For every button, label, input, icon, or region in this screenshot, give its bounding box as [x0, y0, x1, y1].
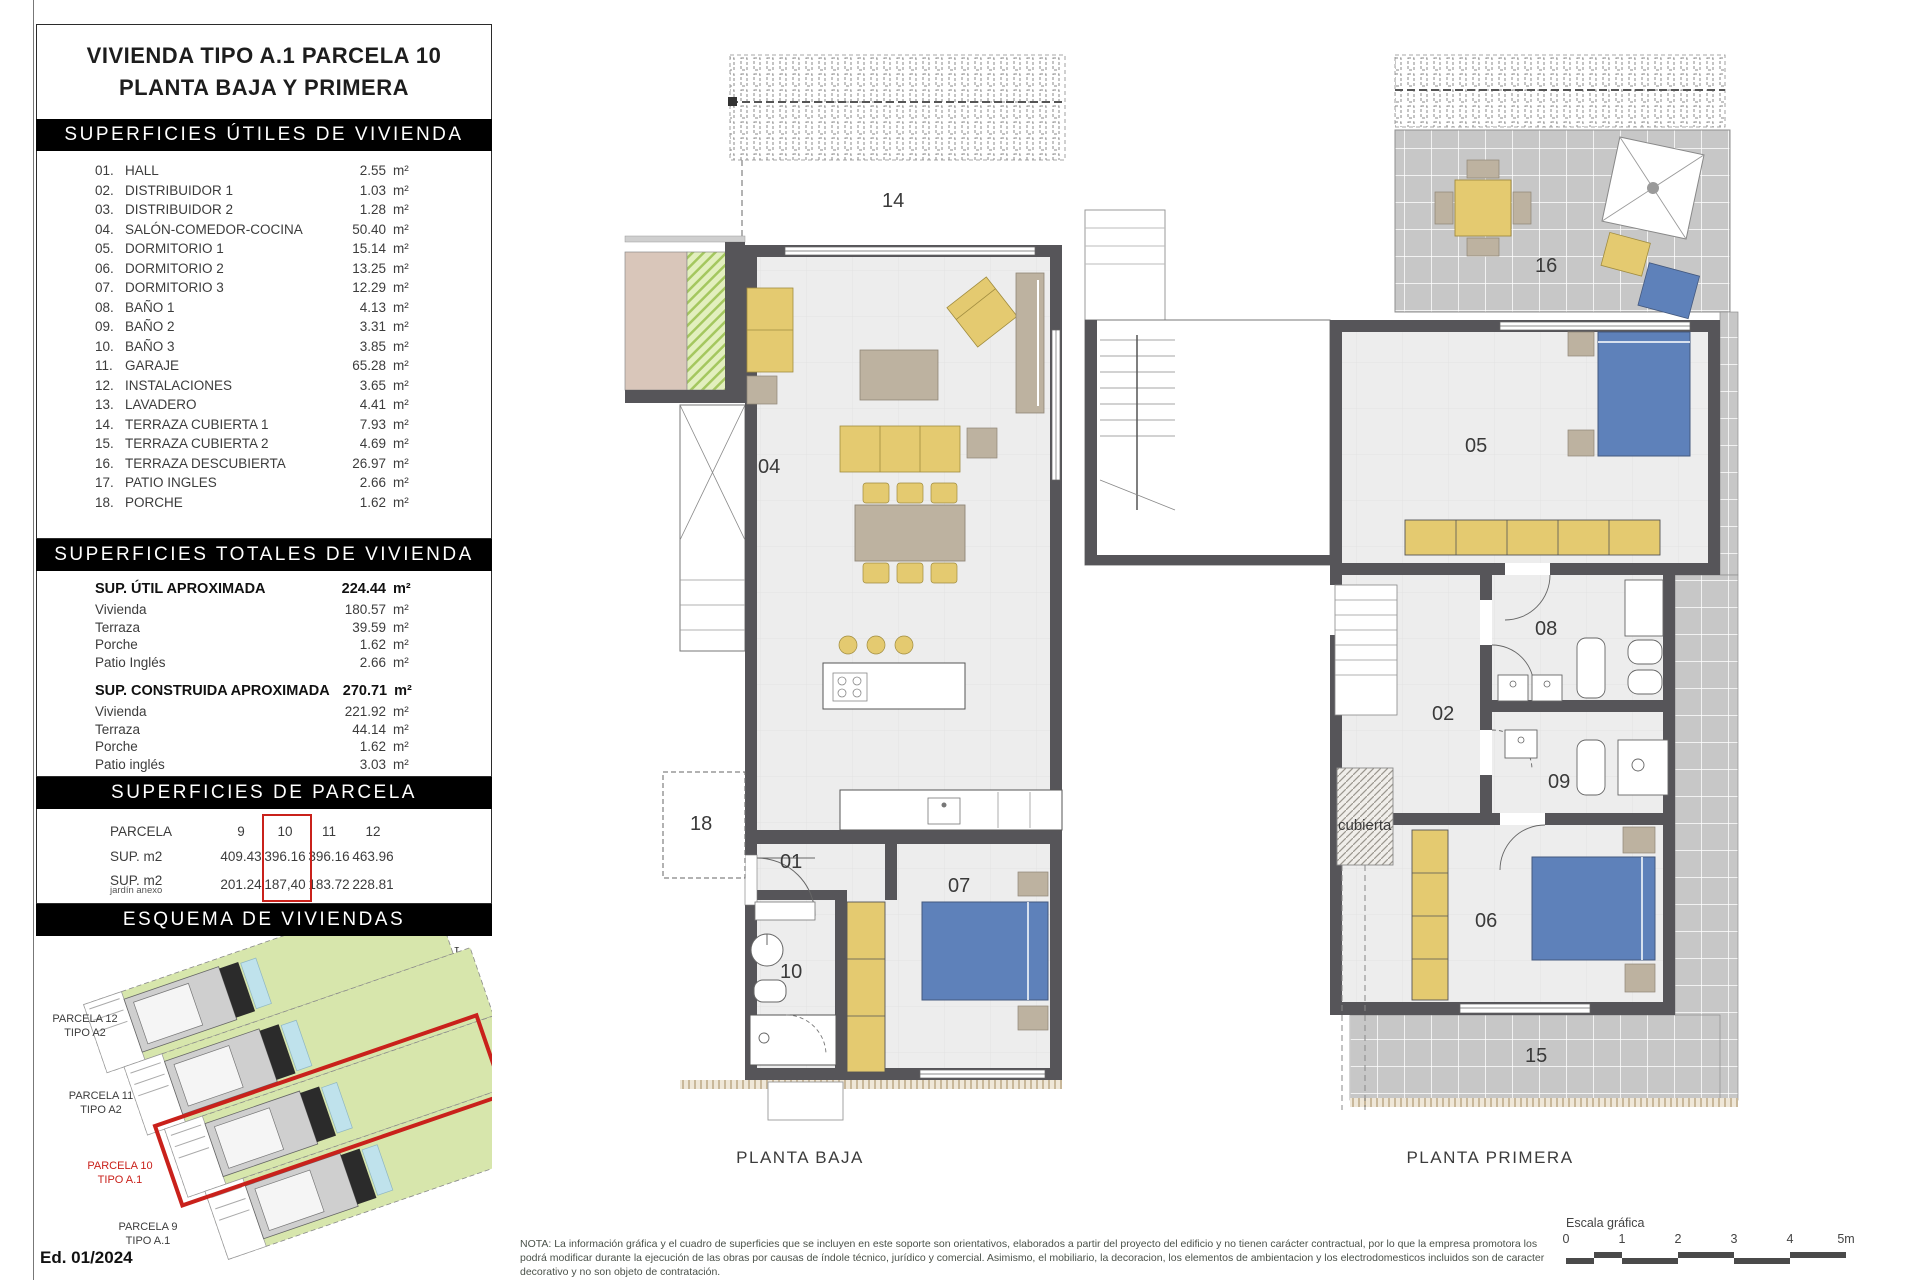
table-row: Patio Inglés 2.66 m² [37, 655, 491, 673]
room-name: LAVADERO [125, 397, 326, 412]
cubierta-label: cubierta [1338, 817, 1392, 834]
jardin-label: SUP. m2jardín anexo [37, 873, 219, 896]
total-util-subrows: Vivienda 180.57 m² Terraza 39.59 m² Porc… [37, 602, 491, 672]
room-name: SALÓN-COMEDOR-COCINA [125, 222, 326, 237]
table-row: Vivienda 180.57 m² [37, 602, 491, 620]
title-line-2: PLANTA BAJA Y PRIMERA [119, 75, 409, 101]
room-area: 2.55 [326, 163, 386, 178]
table-row: 10. BAÑO 3 3.85 m² [37, 339, 491, 359]
unit-label: m² [386, 358, 419, 373]
table-row: 13. LAVADERO 4.41 m² [37, 397, 491, 417]
unit-label: m² [386, 436, 419, 451]
room-area: 50.40 [326, 222, 386, 237]
table-row: 14. TERRAZA CUBIERTA 1 7.93 m² [37, 417, 491, 437]
header-superficies-totales: SUPERFICIES TOTALES DE VIVIENDA [36, 539, 492, 571]
scale-tick: 4 [1787, 1232, 1794, 1246]
floor-plan-planta-baja: 14 [530, 40, 1100, 1150]
item-value: 39.59 [326, 620, 386, 635]
table-row: 08. BAÑO 1 4.13 m² [37, 300, 491, 320]
scale-tick: 2 [1675, 1232, 1682, 1246]
room-label-07: 07 [948, 875, 970, 897]
item-value: 1.62 [326, 637, 386, 652]
title-block: VIVIENDA TIPO A.1 PARCELA 10 PLANTA BAJA… [36, 24, 492, 119]
graphic-scale: Escala gráfica 0 1 2 3 4 5m [1566, 1216, 1848, 1268]
total-util-row: SUP. ÚTIL APROXIMADA 224.44 m² [37, 581, 491, 602]
parcela-number: 10 [263, 824, 307, 839]
unit-label: m² [386, 581, 419, 597]
disclaimer-note: NOTA: La información gráfica y el cuadro… [520, 1238, 1562, 1280]
jardin-label-sub: jardín anexo [110, 885, 219, 896]
parcel-name: PARCELA 12 [52, 1013, 117, 1025]
room-label-05: 05 [1465, 435, 1487, 457]
room-label-01: 01 [780, 851, 802, 873]
row-number: 10. [95, 339, 125, 354]
item-value: 44.14 [326, 722, 386, 737]
parcela-col-numbers: 9101112 [219, 824, 395, 839]
row-number: 03. [95, 202, 125, 217]
caption-planta-primera: PLANTA PRIMERA [1360, 1148, 1620, 1168]
unit-label: m² [386, 397, 419, 412]
floor-plan-planta-primera: 16 15 [1080, 40, 1770, 1150]
kitchen-counter [840, 790, 1062, 830]
parcela-number: 12 [351, 824, 395, 839]
scale-ticks: 0 1 2 3 4 5m [1566, 1232, 1848, 1246]
entry-roof-below [1085, 210, 1165, 328]
parcela-number: 11 [307, 824, 351, 839]
room-area: 65.28 [326, 358, 386, 373]
unit-label: m² [386, 378, 419, 393]
table-row: Terraza 39.59 m² [37, 620, 491, 638]
scale-tick: 3 [1731, 1232, 1738, 1246]
room-name: DISTRIBUIDOR 2 [125, 202, 326, 217]
parcela-jardin-row: SUP. m2jardín anexo 201.24187,40183.7222… [37, 869, 491, 899]
site-label-parcela-10: PARCELA 10TIPO A.1 [72, 1159, 168, 1187]
caption-planta-baja: PLANTA BAJA [670, 1148, 930, 1168]
room-name: TERRAZA DESCUBIERTA [125, 456, 326, 471]
sup-value: 396.16 [263, 849, 307, 864]
sup-value: 463.96 [351, 849, 395, 864]
jardin-value: 201.24 [219, 877, 263, 892]
room-area: 4.13 [326, 300, 386, 315]
patio-ingles-stair [680, 405, 745, 651]
room-area: 26.97 [326, 456, 386, 471]
item-label: Vivienda [95, 704, 326, 719]
wardrobe-dormitorio-1 [1405, 520, 1660, 555]
table-row: 11. GARAJE 65.28 m² [37, 358, 491, 378]
room-area: 2.66 [326, 475, 386, 490]
parcel-type: TIPO A2 [64, 1027, 106, 1039]
sup-values: 409.43396.16396.16463.96 [219, 849, 395, 864]
sup-value: 396.16 [307, 849, 351, 864]
pergola-terraza-cubierta-1 [728, 55, 1065, 245]
wardrobe-dormitorio-2 [1412, 830, 1448, 1000]
row-number: 11. [95, 358, 125, 373]
interior-stairs [1335, 585, 1397, 715]
unit-label: m² [386, 261, 419, 276]
unit-label: m² [386, 757, 419, 772]
item-label: Terraza [95, 620, 326, 635]
item-value: 3.03 [326, 757, 386, 772]
item-value: 1.62 [326, 739, 386, 754]
table-row: 02. DISTRIBUIDOR 1 1.03 m² [37, 183, 491, 203]
site-label-parcela-9: PARCELA 9TIPO A.1 [100, 1220, 196, 1248]
table-row: 06. DORMITORIO 2 13.25 m² [37, 261, 491, 281]
item-label: Porche [95, 739, 326, 754]
item-value: 221.92 [326, 704, 386, 719]
room-name: BAÑO 2 [125, 319, 326, 334]
table-row: 09. BAÑO 2 3.31 m² [37, 319, 491, 339]
terraza-descubierta [1395, 130, 1730, 319]
room-name: BAÑO 1 [125, 300, 326, 315]
sup-label: SUP. m2 [37, 849, 219, 864]
table-row: Patio inglés 3.03 m² [37, 757, 491, 775]
header-superficies-parcela: SUPERFICIES DE PARCELA [36, 777, 492, 809]
row-number: 01. [95, 163, 125, 178]
row-number: 17. [95, 475, 125, 490]
unit-label: m² [386, 339, 419, 354]
unit-label: m² [386, 722, 419, 737]
parasol [1602, 137, 1704, 239]
table-row: Porche 1.62 m² [37, 739, 491, 757]
total-label: SUP. ÚTIL APROXIMADA [95, 581, 326, 597]
scale-title: Escala gráfica [1566, 1216, 1848, 1230]
rear-stoop [768, 1082, 843, 1120]
spacer [37, 672, 491, 683]
item-label: Vivienda [95, 602, 326, 617]
room-label-06: 06 [1475, 910, 1497, 932]
total-value: 270.71 [330, 683, 387, 699]
total-label: SUP. CONSTRUIDA APROXIMADA [95, 683, 330, 699]
room-area: 1.03 [326, 183, 386, 198]
unit-label: m² [386, 475, 419, 490]
table-row: 05. DORMITORIO 1 15.14 m² [37, 241, 491, 261]
jardin-value: 183.72 [307, 877, 351, 892]
unit-label: m² [386, 620, 419, 635]
item-label: Patio Inglés [95, 655, 326, 670]
header-superficies-utiles: SUPERFICIES ÚTILES DE VIVIENDA [36, 119, 492, 151]
unit-label: m² [386, 280, 419, 295]
room-area: 7.93 [326, 417, 386, 432]
row-number: 07. [95, 280, 125, 295]
parcel-name: PARCELA 9 [118, 1221, 177, 1233]
row-number: 16. [95, 456, 125, 471]
parcel-type: TIPO A.1 [126, 1235, 171, 1247]
title-line-1: VIVIENDA TIPO A.1 PARCELA 10 [87, 43, 442, 69]
unit-label: m² [386, 183, 419, 198]
jardin-value: 228.81 [351, 877, 395, 892]
unit-label: m² [386, 655, 419, 670]
room-label-09: 09 [1548, 771, 1570, 793]
room-area: 1.62 [326, 495, 386, 510]
room-area: 3.85 [326, 339, 386, 354]
room-area: 3.31 [326, 319, 386, 334]
room-area: 12.29 [326, 280, 386, 295]
plan-sheet: VIVIENDA TIPO A.1 PARCELA 10 PLANTA BAJA… [0, 0, 1920, 1280]
wardrobe [847, 902, 885, 1072]
room-name: DORMITORIO 2 [125, 261, 326, 276]
room-area: 15.14 [326, 241, 386, 256]
unit-label: m² [386, 637, 419, 652]
entrance-planter [625, 236, 745, 403]
room-area: 4.41 [326, 397, 386, 412]
table-row: Terraza 44.14 m² [37, 722, 491, 740]
esquema-de-viviendas: N [36, 936, 492, 1279]
room-label-16: 16 [1535, 255, 1557, 277]
table-row: Vivienda 221.92 m² [37, 704, 491, 722]
scale-tick: 0 [1563, 1232, 1570, 1246]
parcela-number: 9 [219, 824, 263, 839]
coffee-table [860, 350, 938, 400]
room-name: DORMITORIO 1 [125, 241, 326, 256]
table-row: 18. PORCHE 1.62 m² [37, 495, 491, 515]
parcel-type: TIPO A2 [80, 1104, 122, 1116]
table-row: 16. TERRAZA DESCUBIERTA 26.97 m² [37, 456, 491, 476]
row-number: 05. [95, 241, 125, 256]
sup-value: 409.43 [219, 849, 263, 864]
room-name: DORMITORIO 3 [125, 280, 326, 295]
unit-label: m² [386, 241, 419, 256]
table-row: 15. TERRAZA CUBIERTA 2 4.69 m² [37, 436, 491, 456]
unit-label: m² [386, 300, 419, 315]
row-number: 08. [95, 300, 125, 315]
dining-table [855, 483, 965, 583]
unit-label: m² [386, 704, 419, 719]
parcel-type: TIPO A.1 [98, 1174, 143, 1186]
room-name: TERRAZA CUBIERTA 1 [125, 417, 326, 432]
row-number: 12. [95, 378, 125, 393]
item-label: Porche [95, 637, 326, 652]
unit-label: m² [386, 456, 419, 471]
item-value: 180.57 [326, 602, 386, 617]
unit-label: m² [386, 495, 419, 510]
room-name: TERRAZA CUBIERTA 2 [125, 436, 326, 451]
row-number: 02. [95, 183, 125, 198]
room-label-04: 04 [758, 456, 780, 478]
stairwell [1085, 320, 1330, 565]
row-number: 14. [95, 417, 125, 432]
parcel-name: PARCELA 11 [69, 1090, 133, 1102]
scale-tick: 5m [1837, 1232, 1854, 1246]
row-number: 06. [95, 261, 125, 276]
room-area: 3.65 [326, 378, 386, 393]
room-label-14: 14 [882, 190, 904, 212]
parcela-sup-row: SUP. m2 409.43396.16396.16463.96 [37, 843, 491, 869]
unit-label: m² [386, 602, 419, 617]
table-row: 03. DISTRIBUIDOR 2 1.28 m² [37, 202, 491, 222]
table-row: 17. PATIO INGLES 2.66 m² [37, 475, 491, 495]
unit-label: m² [386, 739, 419, 754]
scale-tick: 1 [1619, 1232, 1626, 1246]
row-number: 15. [95, 436, 125, 451]
room-area: 4.69 [326, 436, 386, 451]
room-area: 13.25 [326, 261, 386, 276]
table-row: Porche 1.62 m² [37, 637, 491, 655]
room-area: 1.28 [326, 202, 386, 217]
room-name: GARAJE [125, 358, 326, 373]
info-panel: VIVIENDA TIPO A.1 PARCELA 10 PLANTA BAJA… [36, 24, 492, 1279]
unit-label: m² [386, 319, 419, 334]
room-label-15: 15 [1525, 1045, 1547, 1067]
header-esquema: ESQUEMA DE VIVIENDAS [36, 904, 492, 936]
jardin-values: 201.24187,40183.72228.81 [219, 877, 395, 892]
scale-bar-segments [1566, 1252, 1846, 1264]
total-value: 224.44 [326, 581, 386, 597]
parcela-row-label: PARCELA [37, 824, 219, 839]
jardin-value: 187,40 [263, 877, 307, 892]
site-label-parcela-12: PARCELA 12TIPO A2 [37, 1012, 133, 1040]
room-name: PATIO INGLES [125, 475, 326, 490]
room-name: BAÑO 3 [125, 339, 326, 354]
room-label-10: 10 [780, 961, 802, 983]
room-label-02: 02 [1432, 703, 1454, 725]
room-name: PORCHE [125, 495, 326, 510]
row-number: 09. [95, 319, 125, 334]
table-row: 01. HALL 2.55 m² [37, 163, 491, 183]
room-name: INSTALACIONES [125, 378, 326, 393]
pergola-roof-slats [1395, 55, 1725, 127]
parcel-name: PARCELA 10 [87, 1160, 152, 1172]
table-superficies-parcela: PARCELA 9101112 SUP. m2 409.43396.16396.… [36, 809, 492, 904]
item-value: 2.66 [326, 655, 386, 670]
parcela-header-row: PARCELA 9101112 [37, 819, 491, 843]
exterior-hatch-strip [680, 1080, 1062, 1089]
item-label: Terraza [95, 722, 326, 737]
unit-label: m² [386, 222, 419, 237]
room-label-08: 08 [1535, 618, 1557, 640]
row-number: 04. [95, 222, 125, 237]
unit-label: m² [386, 417, 419, 432]
total-construida-subrows: Vivienda 221.92 m² Terraza 44.14 m² Porc… [37, 704, 491, 774]
item-label: Patio inglés [95, 757, 326, 772]
site-label-parcela-11: PARCELA 11TIPO A2 [53, 1089, 149, 1117]
edition-stamp: Ed. 01/2024 [40, 1248, 133, 1268]
room-label-18: 18 [690, 813, 712, 835]
tv-sideboard [1016, 273, 1044, 413]
table-row: 04. SALÓN-COMEDOR-COCINA 50.40 m² [37, 222, 491, 242]
table-superficies-totales: SUP. ÚTIL APROXIMADA 224.44 m² Vivienda … [36, 571, 492, 777]
table-superficies-utiles: 01. HALL 2.55 m² 02. DISTRIBUIDOR 1 1.03… [36, 151, 492, 539]
row-number: 18. [95, 495, 125, 510]
unit-label: m² [386, 163, 419, 178]
room-name: HALL [125, 163, 326, 178]
row-number: 13. [95, 397, 125, 412]
table-row: 12. INSTALACIONES 3.65 m² [37, 378, 491, 398]
total-construida-row: SUP. CONSTRUIDA APROXIMADA 270.71 m² [37, 683, 491, 704]
table-row: 07. DORMITORIO 3 12.29 m² [37, 280, 491, 300]
room-name: DISTRIBUIDOR 1 [125, 183, 326, 198]
page-frame-line [33, 0, 34, 1280]
unit-label: m² [386, 202, 419, 217]
unit-label: m² [387, 683, 419, 699]
